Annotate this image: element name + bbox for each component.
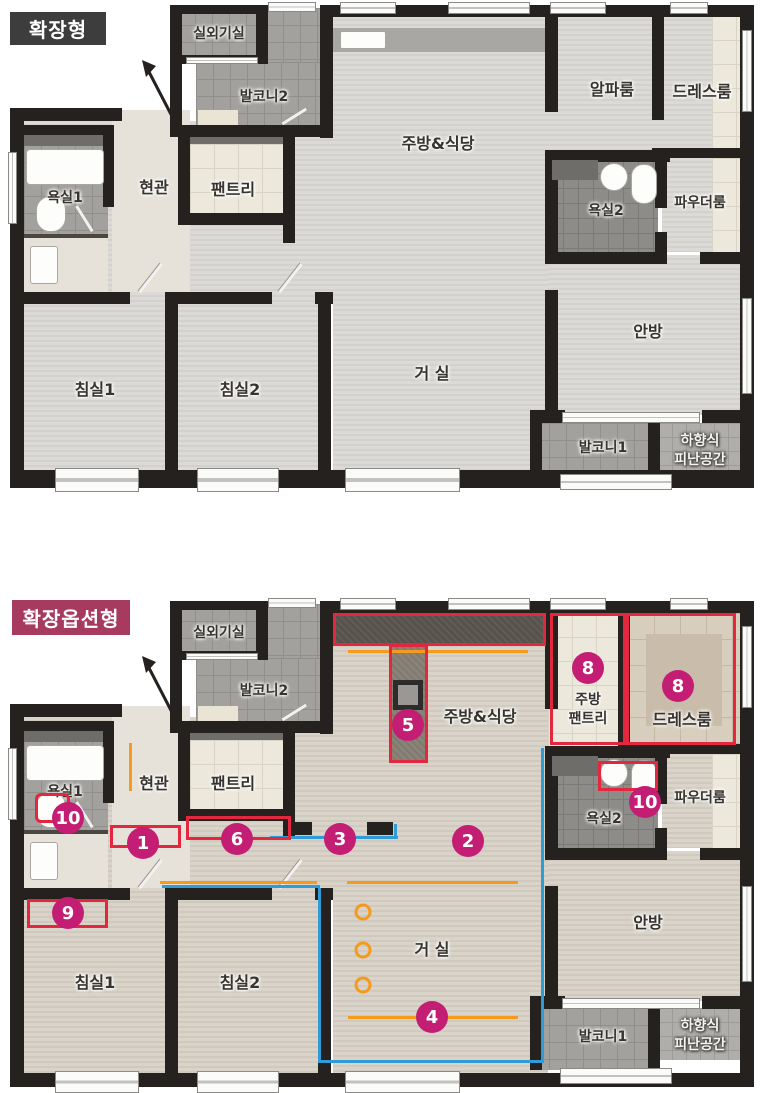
room-label-entrance: 현관 [139, 770, 168, 794]
wall [283, 125, 295, 243]
room-label-powder-room: 파우더룸 [674, 787, 726, 807]
wall [112, 108, 122, 121]
wall [190, 213, 290, 225]
wall [178, 721, 190, 821]
washer [30, 842, 58, 880]
room-label-evac-1: 하향식 [681, 1015, 720, 1035]
bath2-counter [552, 160, 598, 180]
wall [165, 888, 178, 1073]
window [742, 298, 752, 394]
window [550, 598, 606, 610]
orange-line [129, 743, 132, 791]
orange-circle [355, 977, 372, 994]
marker-10-bath2: 10 [629, 786, 661, 818]
room-label-outdoor-unit: 실외기실 [193, 622, 245, 642]
toilet [631, 164, 657, 204]
wall [652, 148, 754, 158]
room-label-balcony2: 발코니2 [240, 86, 288, 106]
room-label-bedroom1: 침실1 [75, 969, 116, 993]
window [448, 2, 530, 14]
marker-8-dress-room: 8 [662, 670, 694, 702]
room-label-kitchen-dining: 주방&식당 [402, 130, 475, 154]
wall [288, 822, 312, 835]
wall [170, 721, 333, 733]
wall [165, 888, 272, 900]
room-label-dress-room: 드레스룸 [673, 78, 732, 102]
wall [10, 721, 114, 731]
window [560, 1068, 672, 1084]
wall [256, 601, 268, 654]
room-label-master: 안방 [633, 318, 662, 342]
wall [648, 423, 660, 478]
plan-type-badge-extended: 확장형 [10, 12, 106, 45]
floorplan-extended-option: 실외기실 발코니2 주방&식당 주방 팬트리 드레스룸 욕실1 현관 팬트리 욕… [0, 596, 760, 1090]
kitchen-sink [340, 31, 386, 49]
room-label-bath1: 욕실1 [47, 187, 83, 207]
wall [545, 848, 667, 860]
window [560, 474, 672, 490]
window [186, 653, 258, 660]
window [55, 468, 139, 492]
wall [320, 601, 333, 734]
orange-circle [355, 942, 372, 959]
floor-balcony2-upper [266, 604, 322, 658]
window [550, 2, 606, 14]
wall [700, 848, 754, 860]
room-label-pantry: 팬트리 [211, 770, 255, 794]
wall [530, 410, 542, 478]
bathtub [26, 745, 104, 781]
balcony2-bench [198, 110, 238, 126]
wall [545, 290, 558, 415]
window [742, 30, 752, 112]
wall [367, 822, 393, 835]
blue-line [541, 748, 544, 1063]
bath1-shelf [24, 135, 108, 146]
wall [320, 5, 333, 138]
window [562, 998, 700, 1009]
wall [170, 601, 268, 610]
room-label-pantry: 팬트리 [211, 176, 255, 200]
room-label-bedroom2: 침실2 [220, 376, 261, 400]
orange-line [160, 881, 317, 884]
wall [652, 16, 664, 120]
option-zone-island [389, 644, 428, 763]
room-label-outdoor-unit: 실외기실 [193, 23, 245, 43]
floor-balcony2-upper [266, 8, 322, 62]
wall [256, 5, 268, 58]
wall [112, 704, 122, 717]
window [562, 412, 700, 423]
wall [178, 125, 190, 225]
wall [165, 292, 178, 470]
blue-line [320, 1060, 544, 1063]
room-label-living: 거 실 [414, 360, 449, 384]
room-label-bedroom2: 침실2 [220, 969, 261, 993]
wall [103, 135, 114, 207]
marker-9: 9 [52, 897, 84, 929]
wall [702, 410, 754, 423]
wall [545, 16, 558, 112]
wall [170, 125, 333, 137]
room-label-evac-2: 피난공간 [674, 449, 726, 469]
wall [318, 292, 331, 470]
entrance-arrow-icon [138, 58, 184, 128]
orange-circle [355, 904, 372, 921]
wall [10, 704, 112, 717]
marker-5: 5 [392, 709, 424, 741]
window [448, 598, 530, 610]
room-label-balcony1: 발코니1 [579, 1026, 627, 1046]
option-zone-counter [333, 613, 546, 646]
room-label-evac-1: 하향식 [681, 430, 720, 450]
room-label-bedroom1: 침실1 [75, 376, 116, 400]
marker-6: 6 [221, 823, 253, 855]
window [8, 748, 17, 820]
window [340, 2, 396, 14]
window [742, 886, 752, 982]
window [186, 57, 258, 64]
room-label-bath2: 욕실2 [588, 200, 624, 220]
window [670, 2, 708, 14]
room-label-powder-room: 파우더룸 [674, 192, 726, 212]
blue-line [162, 885, 320, 888]
wall [165, 292, 272, 304]
room-label-entrance: 현관 [139, 174, 168, 198]
plan-type-badge-extended-option: 확장옵션형 [12, 600, 130, 635]
window [340, 598, 396, 610]
wall [103, 731, 114, 803]
wall [24, 234, 108, 238]
room-label-balcony1: 발코니1 [579, 437, 627, 457]
room-label-kitchen-dining: 주방&식당 [444, 703, 517, 727]
wall [700, 252, 754, 264]
marker-2: 2 [452, 825, 484, 857]
window [268, 2, 316, 12]
window [670, 598, 708, 610]
wall [545, 886, 558, 1001]
window [268, 598, 316, 608]
room-label-bath2: 욕실2 [586, 808, 622, 828]
marker-4: 4 [416, 1001, 448, 1033]
wall [648, 1008, 660, 1073]
wall [10, 125, 114, 135]
marker-1: 1 [127, 827, 159, 859]
window [345, 468, 460, 492]
blue-line [318, 888, 321, 1063]
floorplan-extended: 실외기실 발코니2 주방&식당 알파룸 드레스룸 욕실1 현관 팬트리 욕실2 … [0, 0, 760, 520]
sink [600, 163, 628, 191]
floor-kitchen-living [333, 16, 548, 470]
wall [545, 252, 667, 264]
washer [30, 246, 58, 284]
room-label-alpha-room: 알파룸 [590, 76, 634, 100]
orange-line [347, 881, 518, 884]
marker-10-bath1: 10 [52, 802, 84, 834]
room-label-evac-2: 피난공간 [674, 1034, 726, 1054]
wall [618, 744, 754, 754]
bath2-counter [552, 756, 598, 776]
window [742, 626, 752, 708]
wall [702, 996, 754, 1009]
window [197, 468, 279, 492]
bath1-shelf [24, 731, 108, 742]
marker-3: 3 [324, 823, 356, 855]
wall [10, 108, 112, 121]
orange-line [348, 650, 528, 653]
wall [170, 5, 268, 14]
room-label-living: 거 실 [414, 936, 449, 960]
balcony2-bench [198, 706, 238, 722]
blue-line [394, 824, 397, 838]
bathtub [26, 149, 104, 185]
room-label-master: 안방 [633, 909, 662, 933]
wall [10, 292, 130, 304]
marker-8-kitchen-pantry: 8 [572, 652, 604, 684]
entrance-arrow-icon [138, 654, 184, 724]
room-label-balcony2: 발코니2 [240, 680, 288, 700]
window [8, 152, 17, 224]
